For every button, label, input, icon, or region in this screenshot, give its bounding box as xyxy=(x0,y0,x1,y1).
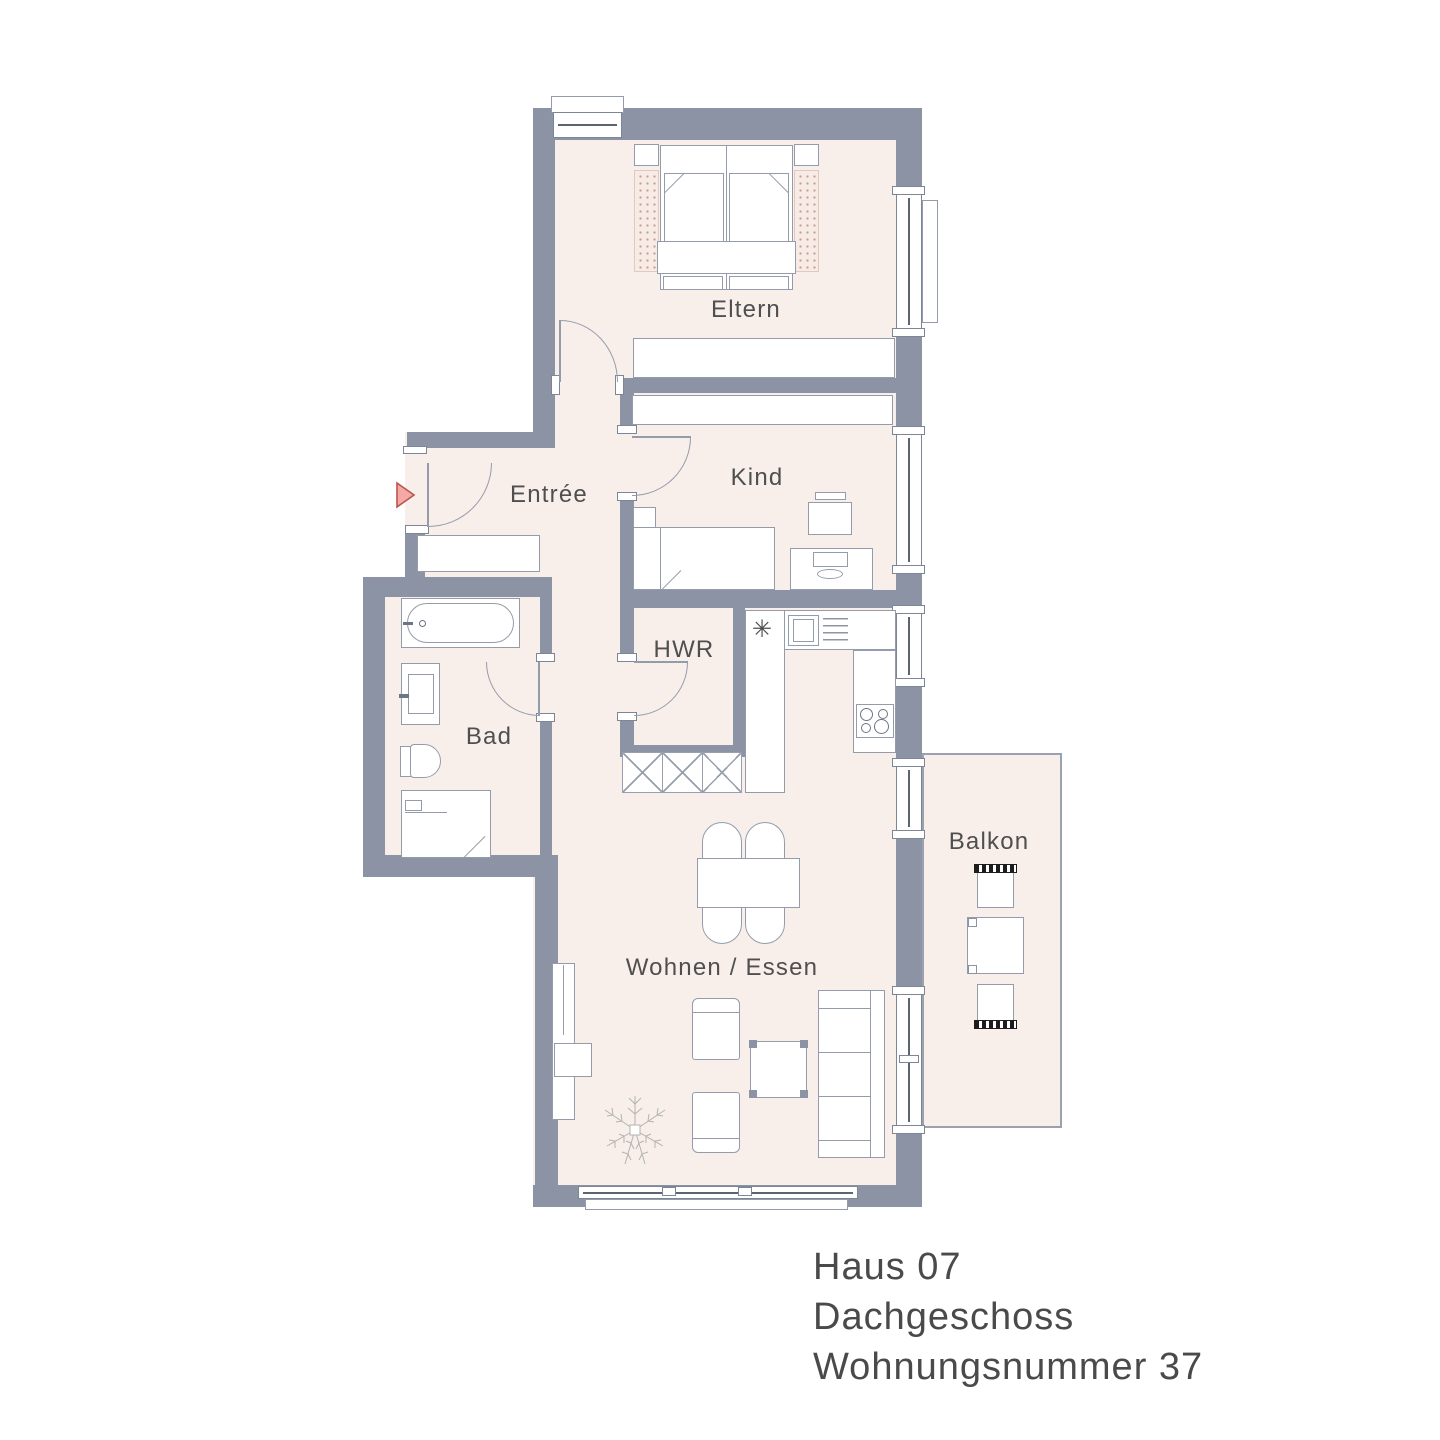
title-apartment: Wohnungsnummer 37 xyxy=(813,1342,1203,1392)
washbasin-tap xyxy=(399,694,409,698)
nightstand-left xyxy=(634,144,659,166)
window-jamb xyxy=(892,426,925,435)
title-block: Haus 07 Dachgeschoss Wohnungsnummer 37 xyxy=(813,1242,1203,1392)
dining-chair xyxy=(745,904,785,944)
wall-bad-left xyxy=(363,577,385,877)
armchair xyxy=(692,1092,740,1153)
desk-chair-back xyxy=(815,492,846,500)
bed-foot-right xyxy=(729,276,789,290)
window-mullion xyxy=(662,1187,676,1196)
closet-cell xyxy=(702,752,742,793)
door-jamb xyxy=(617,425,637,434)
dining-chair xyxy=(702,822,742,862)
stove-burner xyxy=(861,723,871,733)
sofa xyxy=(818,990,885,1158)
dining-chair xyxy=(745,822,785,862)
kind-bed-pillow-line xyxy=(660,528,661,589)
stove-burner xyxy=(874,719,889,734)
window-living-bottom xyxy=(578,1186,858,1199)
title-house: Haus 07 xyxy=(813,1242,1203,1292)
wall-left-upper xyxy=(533,108,555,448)
sink-symbol-icon: ✳ xyxy=(752,618,772,642)
window-jamb xyxy=(892,758,925,767)
tv xyxy=(554,1043,592,1077)
window-eltern-top xyxy=(553,112,622,138)
sideboard-line xyxy=(563,965,564,1035)
laptop xyxy=(813,552,848,567)
room-label-balkon: Balkon xyxy=(919,828,1059,856)
bed-blanket xyxy=(657,241,796,274)
window-kind xyxy=(896,433,922,567)
coffee-table-corner xyxy=(800,1040,808,1048)
balcony-chair-back xyxy=(974,1020,1017,1029)
bed-foot-left xyxy=(663,276,723,290)
shower-head xyxy=(405,800,422,811)
room-label-eltern: Eltern xyxy=(666,296,826,324)
dining-chair xyxy=(702,904,742,944)
window-sill xyxy=(585,1199,848,1210)
kind-shelf xyxy=(633,507,656,528)
wall-bad-bottom xyxy=(363,855,558,877)
coffee-table-corner xyxy=(800,1090,808,1098)
washbasin-inner xyxy=(408,674,434,714)
door-jamb xyxy=(405,525,429,534)
window-jamb xyxy=(892,186,925,195)
window-eltern-right xyxy=(896,193,922,330)
window-jamb xyxy=(892,565,925,574)
kitchen-sink-basin xyxy=(793,619,814,642)
wall-kind-bottom xyxy=(620,590,922,608)
balcony-chair-back xyxy=(974,864,1017,873)
sink-drainer xyxy=(823,618,848,645)
plant-icon xyxy=(593,1088,677,1172)
armchair xyxy=(692,998,740,1060)
door-jamb xyxy=(403,446,427,454)
coffee-table xyxy=(750,1041,807,1098)
floor-plan-canvas: ✳ xyxy=(0,0,1440,1440)
room-label-wohnen: Wohnen / Essen xyxy=(572,954,872,982)
wardrobe-entree xyxy=(417,535,540,572)
window-mullion xyxy=(899,1055,919,1063)
title-floor: Dachgeschoss xyxy=(813,1292,1203,1342)
nightstand-right xyxy=(794,144,819,166)
kind-bed xyxy=(633,527,775,590)
window-eltern-ext-box xyxy=(922,200,938,323)
sofa-armrest-line xyxy=(819,1008,871,1009)
window-jamb xyxy=(892,678,925,687)
rug-right xyxy=(794,170,819,272)
closet-cell xyxy=(622,752,663,793)
window-kitchen xyxy=(896,612,922,680)
shower-arm xyxy=(405,812,447,813)
wall-bad-top xyxy=(363,577,552,597)
desk-chair xyxy=(808,502,852,535)
rug-left xyxy=(634,170,659,272)
window-jamb xyxy=(892,1125,925,1134)
room-label-entree: Entrée xyxy=(479,481,619,509)
balcony-door-upper xyxy=(896,765,922,832)
window-mullion xyxy=(738,1187,752,1196)
entry-arrow-icon xyxy=(395,481,417,509)
balcony-chair xyxy=(977,984,1014,1022)
wall-eltern-bottom-b xyxy=(617,378,896,393)
window-jamb xyxy=(892,605,925,614)
closet-cell xyxy=(662,752,703,793)
sofa-back-line xyxy=(870,991,871,1157)
window-jamb xyxy=(892,986,925,995)
wardrobe-kind xyxy=(632,395,893,425)
wardrobe-eltern xyxy=(633,338,895,378)
door-jamb xyxy=(536,653,555,662)
bathtub-tap xyxy=(403,622,413,625)
wall-entrance-top xyxy=(407,432,555,448)
stove-burner xyxy=(878,709,888,719)
stove-burner xyxy=(860,708,873,721)
wall-bad-right-a xyxy=(540,597,552,660)
balcony-table-corner xyxy=(968,918,977,927)
sofa-armrest-line xyxy=(819,1140,871,1141)
room-label-hwr: HWR xyxy=(614,636,754,664)
sofa-cushion-line xyxy=(819,1096,871,1097)
armchair-back-line xyxy=(693,1012,739,1013)
window-jamb xyxy=(892,328,925,337)
balcony-chair xyxy=(977,870,1014,908)
wall-hwr-right xyxy=(733,605,745,757)
mouse-pad xyxy=(817,569,843,579)
balcony-table-corner xyxy=(968,965,977,974)
coffee-table-corner xyxy=(749,1040,757,1048)
room-label-kind: Kind xyxy=(687,464,827,492)
sofa-cushion-line xyxy=(819,1052,871,1053)
room-label-bad: Bad xyxy=(419,723,559,751)
coffee-table-corner xyxy=(749,1090,757,1098)
dining-table xyxy=(697,858,800,908)
armchair-back-line xyxy=(693,1138,739,1139)
window-top-shutter-box xyxy=(551,96,624,113)
bathtub-drain xyxy=(419,620,426,627)
